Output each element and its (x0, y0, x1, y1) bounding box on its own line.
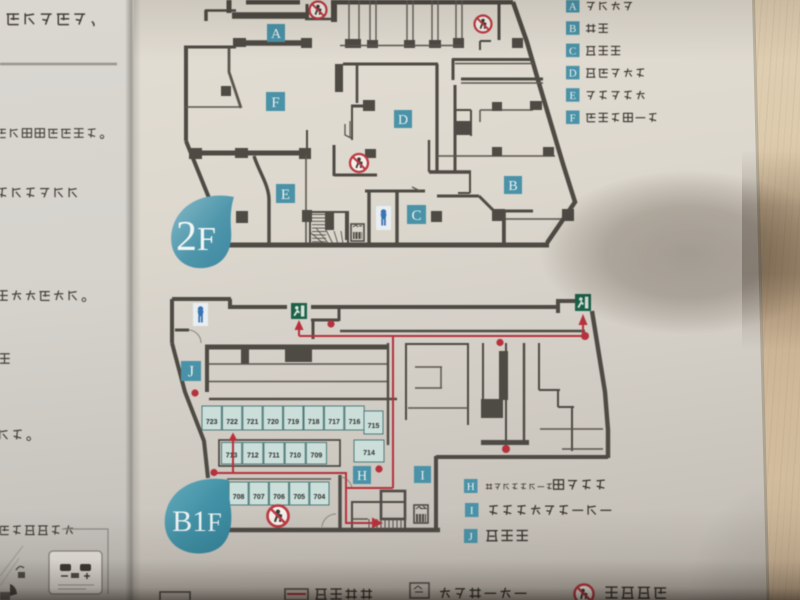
svg-text:704: 704 (314, 494, 326, 501)
svg-text:707: 707 (253, 494, 265, 501)
svg-text:715: 715 (368, 423, 380, 430)
svg-text:717: 717 (328, 419, 340, 426)
svg-text:718: 718 (308, 419, 320, 426)
svg-text:F: F (570, 112, 576, 124)
svg-text:720: 720 (267, 419, 279, 426)
svg-text:723: 723 (206, 419, 218, 426)
svg-text:711: 711 (268, 453, 279, 460)
svg-text:D: D (398, 113, 408, 128)
svg-text:713: 713 (226, 453, 238, 460)
svg-text:721: 721 (247, 419, 259, 426)
svg-text:719: 719 (287, 419, 299, 426)
svg-text:H: H (357, 469, 367, 484)
svg-text:708: 708 (233, 494, 245, 501)
svg-text:706: 706 (273, 494, 285, 501)
svg-text:709: 709 (311, 453, 323, 460)
svg-text:712: 712 (247, 453, 259, 460)
svg-text:E: E (569, 90, 576, 102)
svg-text:716: 716 (349, 419, 361, 426)
svg-text:J: J (188, 364, 194, 381)
svg-text:714: 714 (363, 450, 375, 457)
svg-text:D: D (569, 68, 577, 80)
svg-text:710: 710 (289, 453, 301, 460)
svg-text:E: E (281, 187, 290, 203)
svg-text:705: 705 (293, 494, 305, 501)
svg-text:I: I (420, 467, 424, 482)
svg-text:722: 722 (226, 419, 238, 426)
svg-text:2F: 2F (176, 214, 216, 260)
svg-text:H: H (467, 481, 475, 493)
svg-text:F: F (271, 95, 279, 111)
svg-text:C: C (411, 208, 421, 224)
